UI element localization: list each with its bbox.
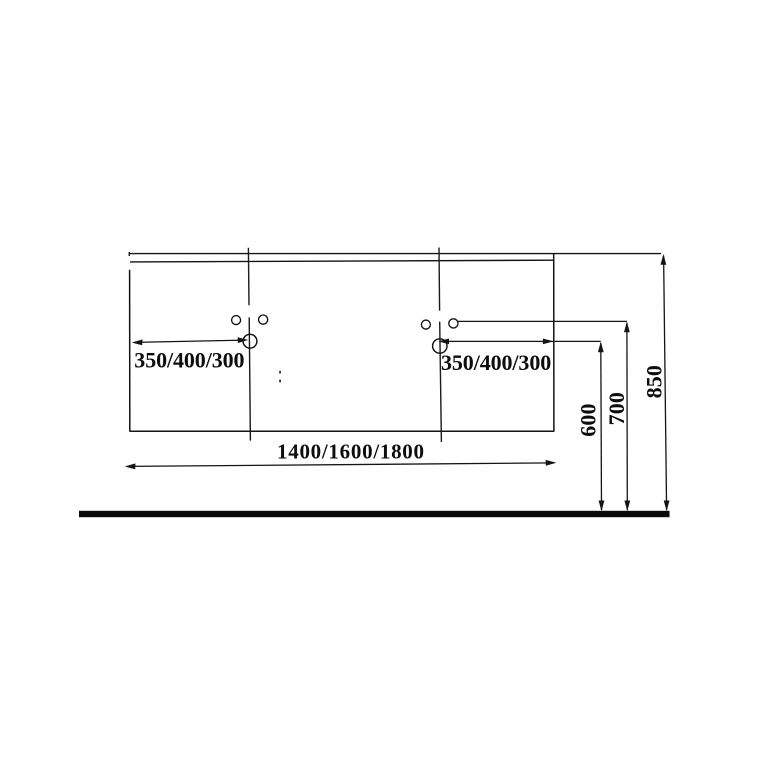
svg-text:600: 600 [576,403,601,436]
svg-text:700: 700 [604,392,629,425]
svg-text:1400/1600/1800: 1400/1600/1800 [277,440,425,464]
svg-text:850: 850 [641,365,666,398]
svg-text:350/400/300: 350/400/300 [134,348,244,373]
svg-text:350/400/300: 350/400/300 [441,350,551,375]
